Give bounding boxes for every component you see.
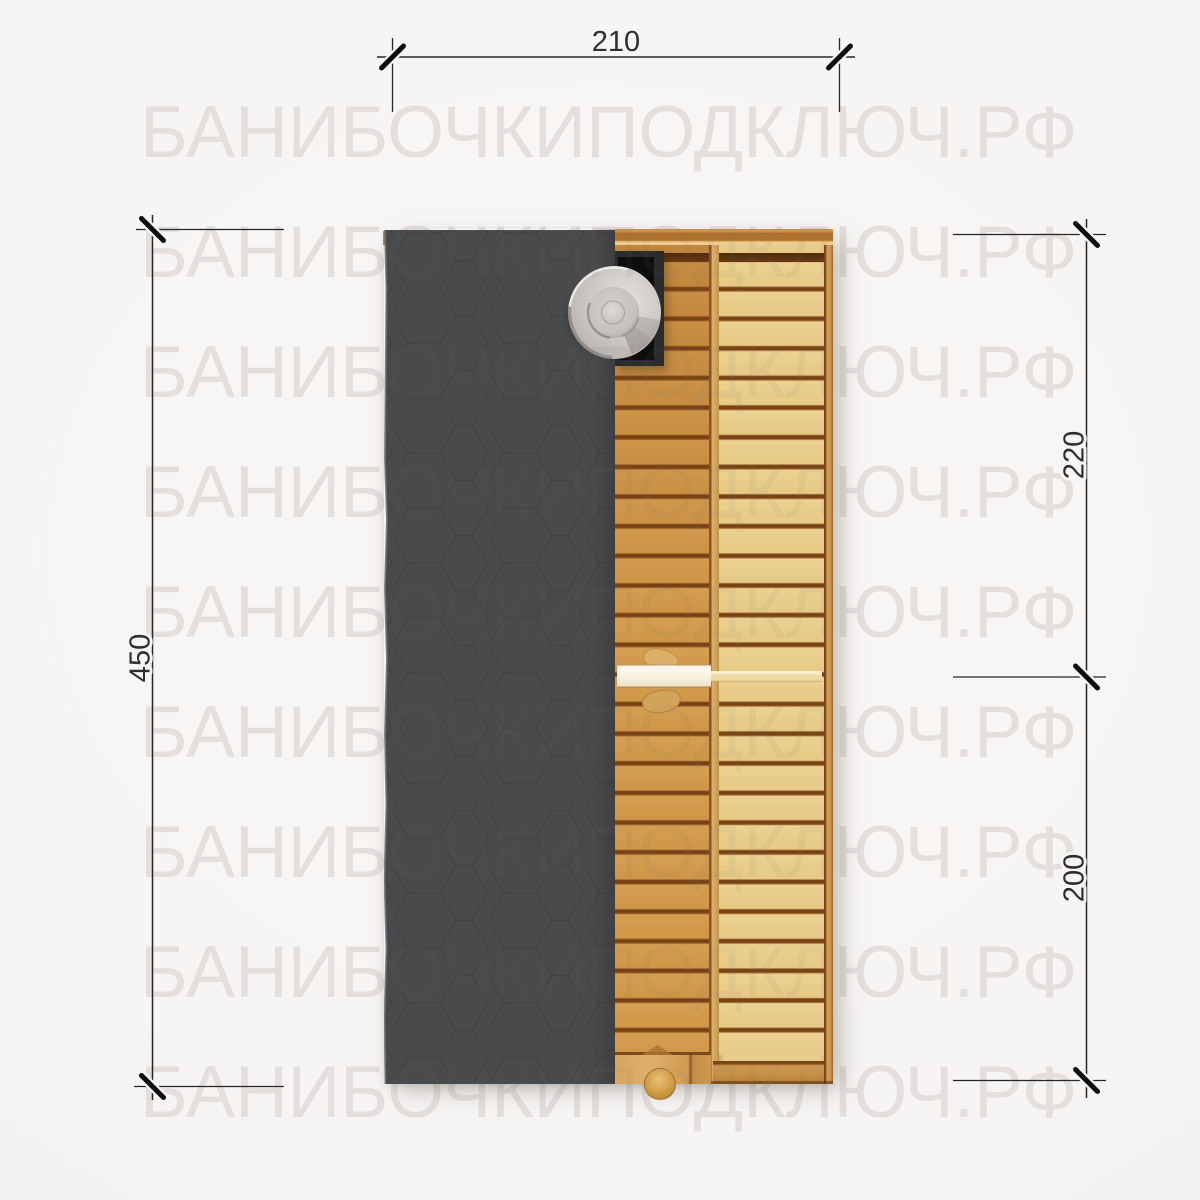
svg-text:200: 200 bbox=[1059, 854, 1091, 902]
svg-text:450: 450 bbox=[125, 634, 157, 682]
svg-text:220: 220 bbox=[1059, 431, 1091, 479]
svg-text:210: 210 bbox=[592, 26, 640, 58]
